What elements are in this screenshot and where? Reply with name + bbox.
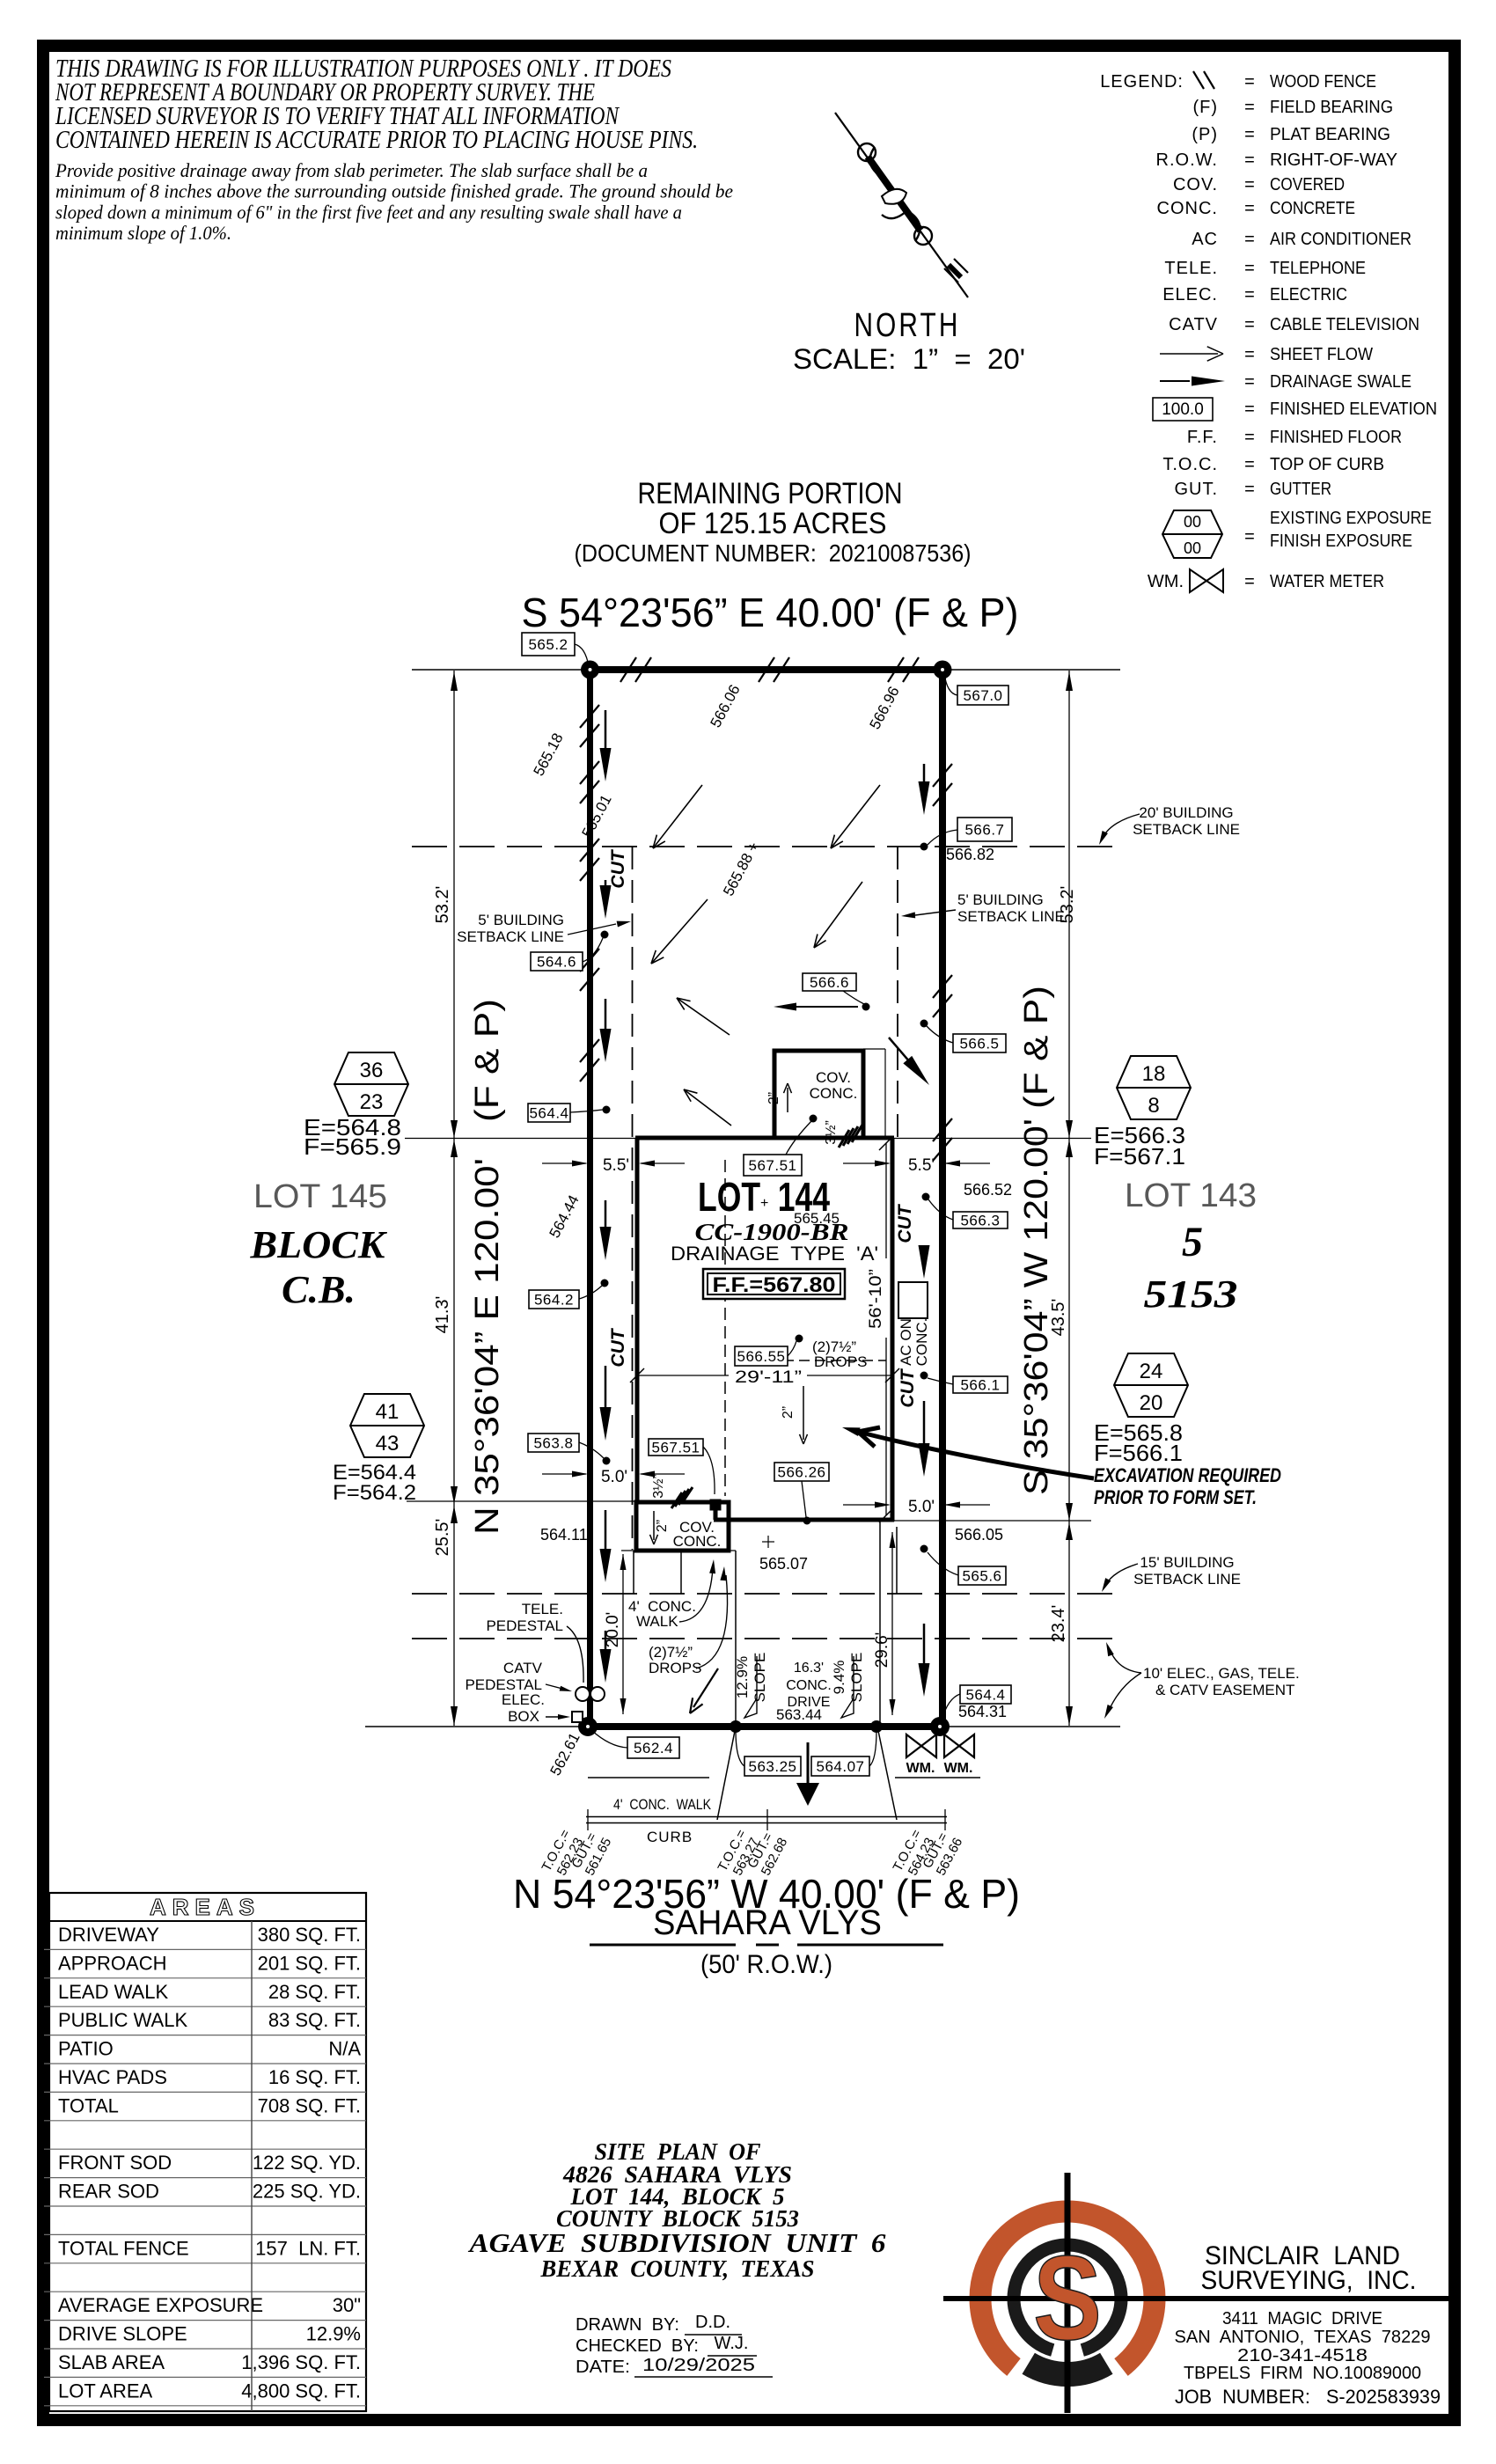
svg-text:41: 41 [376, 1400, 400, 1424]
svg-text:SCALE: 1” = 20': SCALE: 1” = 20' [793, 343, 1025, 375]
svg-text:TBPELS FIRM NO.10089000: TBPELS FIRM NO.10089000 [1184, 2364, 1421, 2383]
svg-text:566.5: 566.5 [959, 1036, 999, 1052]
svg-text:5' BUILDING: 5' BUILDING [478, 912, 564, 928]
svg-text:=: = [1244, 125, 1255, 144]
svg-text:SETBACK LINE: SETBACK LINE [457, 928, 564, 945]
svg-text:TOP OF CURB: TOP OF CURB [1270, 455, 1384, 474]
svg-text:DRAINAGE SWALE: DRAINAGE SWALE [1270, 372, 1412, 392]
svg-text:F=567.1: F=567.1 [1094, 1143, 1185, 1170]
svg-text:566.7: 566.7 [964, 822, 1004, 839]
svg-text:TELE.: TELE. [522, 1601, 563, 1617]
svg-text:WM.: WM. [1148, 572, 1184, 591]
svg-text:9.4%: 9.4% [831, 1661, 847, 1695]
svg-text:PLAT BEARING: PLAT BEARING [1270, 125, 1390, 144]
svg-text:N 35°36'04” E 120.00': N 35°36'04” E 120.00' [469, 1158, 506, 1535]
svg-text:=: = [1244, 572, 1255, 591]
svg-text:1,396 SQ. FT.: 1,396 SQ. FT. [241, 2351, 361, 2373]
svg-text:CUT: CUT [895, 1203, 915, 1243]
svg-text:564.31: 564.31 [958, 1703, 1007, 1720]
svg-text:3½”: 3½” [651, 1474, 666, 1499]
svg-text:83 SQ. FT.: 83 SQ. FT. [268, 2009, 361, 2031]
svg-text:41.3': 41.3' [433, 1296, 452, 1334]
svg-text:23: 23 [360, 1090, 384, 1114]
svg-text:708 SQ. FT.: 708 SQ. FT. [258, 2094, 361, 2116]
svg-text:GUT.: GUT. [1174, 480, 1218, 499]
svg-text:SETBACK LINE: SETBACK LINE [957, 908, 1065, 925]
svg-text:CONC.: CONC. [1157, 199, 1218, 218]
svg-text:LOT 143: LOT 143 [1125, 1177, 1257, 1214]
svg-text:2”: 2” [781, 1406, 796, 1419]
svg-text:DROPS: DROPS [814, 1353, 867, 1370]
svg-text:210-341-4518: 210-341-4518 [1237, 2346, 1368, 2365]
svg-text:16 SQ. FT.: 16 SQ. FT. [268, 2066, 361, 2088]
svg-text:RIGHT-OF-WAY: RIGHT-OF-WAY [1270, 150, 1397, 170]
svg-text:C.B.: C.B. [282, 1268, 356, 1311]
svg-text:FIELD BEARING: FIELD BEARING [1270, 98, 1393, 117]
svg-text:=: = [1244, 480, 1255, 499]
svg-text:4,800 SQ. FT.: 4,800 SQ. FT. [241, 2380, 361, 2402]
svg-text:380 SQ. FT.: 380 SQ. FT. [258, 1924, 361, 1946]
svg-text:CUT: CUT [898, 1368, 918, 1407]
svg-text:5.5': 5.5' [908, 1156, 935, 1175]
svg-text:F=564.2: F=564.2 [333, 1481, 416, 1505]
svg-text:APPROACH: APPROACH [58, 1952, 166, 1974]
svg-text:=: = [1244, 150, 1255, 170]
svg-text:566.6: 566.6 [810, 974, 849, 991]
svg-text:AC: AC [1192, 230, 1218, 249]
svg-text:5' BUILDING: 5' BUILDING [957, 891, 1044, 908]
svg-text:565.07: 565.07 [759, 1555, 808, 1573]
svg-text:16.3': 16.3' [794, 1661, 824, 1676]
svg-text:DRAWN BY:: DRAWN BY: [576, 2315, 679, 2335]
svg-text:WATER METER: WATER METER [1270, 572, 1384, 591]
svg-text:WM.: WM. [906, 1761, 935, 1776]
svg-text:20' BUILDING: 20' BUILDING [1139, 804, 1233, 821]
svg-text:157 LN. FT.: 157 LN. FT. [255, 2237, 361, 2259]
svg-text:225 SQ. YD.: 225 SQ. YD. [253, 2181, 361, 2203]
svg-text:18: 18 [1142, 1062, 1166, 1086]
svg-text:S 35°36'04” W 120.00': S 35°36'04” W 120.00' [1018, 1118, 1055, 1495]
svg-text:R.O.W.: R.O.W. [1156, 150, 1218, 170]
svg-text:DRAINAGE TYPE 'A': DRAINAGE TYPE 'A' [671, 1243, 878, 1265]
svg-text:CUT: CUT [608, 848, 628, 888]
svg-text:AREAS: AREAS [150, 1894, 260, 1920]
svg-text:GUTTER: GUTTER [1270, 480, 1331, 499]
svg-text:D.D.: D.D. [695, 2313, 730, 2332]
svg-text:TELEPHONE: TELEPHONE [1270, 259, 1366, 278]
svg-text:5.5': 5.5' [603, 1156, 629, 1175]
svg-text:(50' R.O.W.): (50' R.O.W.) [700, 1950, 832, 1979]
svg-text:CONC.: CONC. [786, 1678, 832, 1693]
svg-text:REMAINING PORTION: REMAINING PORTION [638, 477, 903, 510]
svg-text:CONC.: CONC. [810, 1085, 858, 1102]
svg-text:EXCAVATION REQUIRED: EXCAVATION REQUIRED [1094, 1464, 1281, 1486]
svg-text:=: = [1244, 372, 1255, 392]
svg-text:PRIOR TO FORM SET.: PRIOR TO FORM SET. [1094, 1486, 1257, 1508]
svg-text:567.51: 567.51 [749, 1157, 797, 1174]
svg-text:566.3: 566.3 [960, 1213, 1000, 1229]
svg-text:564.4: 564.4 [965, 1687, 1005, 1704]
svg-text:AGAVE SUBDIVISION UNIT 6: AGAVE SUBDIVISION UNIT 6 [467, 2227, 886, 2258]
svg-text:00: 00 [1184, 539, 1201, 557]
svg-text:OF 125.15 ACRES: OF 125.15 ACRES [659, 507, 887, 540]
svg-text:SETBACK LINE: SETBACK LINE [1133, 1571, 1241, 1588]
svg-text:F=566.1: F=566.1 [1094, 1440, 1183, 1466]
svg-text:562.4: 562.4 [634, 1740, 673, 1756]
svg-text:=: = [1244, 315, 1255, 334]
svg-text:CC-1900-BR: CC-1900-BR [695, 1219, 849, 1245]
svg-text:F.F.=567.80: F.F.=567.80 [713, 1273, 836, 1297]
svg-text:FRONT SOD: FRONT SOD [58, 2152, 172, 2174]
svg-text:CONC.: CONC. [913, 1318, 930, 1367]
svg-text:201 SQ. FT.: 201 SQ. FT. [258, 1952, 361, 1974]
svg-text:5.0': 5.0' [908, 1498, 935, 1516]
svg-text:24: 24 [1140, 1360, 1163, 1383]
svg-text:+: + [760, 1196, 768, 1211]
svg-text:25.5': 25.5' [433, 1519, 452, 1557]
svg-text:5153: 5153 [1144, 1272, 1238, 1316]
svg-text:=: = [1244, 285, 1255, 304]
svg-text:TOTAL FENCE: TOTAL FENCE [58, 2237, 189, 2259]
svg-text:SLAB AREA: SLAB AREA [58, 2351, 165, 2373]
svg-text:F.F.: F.F. [1187, 428, 1218, 447]
svg-text:BEXAR COUNTY, TEXAS: BEXAR COUNTY, TEXAS [540, 2255, 815, 2282]
svg-text:AVERAGE EXPOSURE: AVERAGE EXPOSURE [58, 2294, 263, 2316]
svg-text:564.07: 564.07 [817, 1758, 865, 1775]
svg-text:(DOCUMENT NUMBER: 20210087536: (DOCUMENT NUMBER: 20210087536) [575, 539, 972, 567]
svg-text:minimum slope of 1.0%.: minimum slope of 1.0%. [55, 222, 231, 244]
svg-text:=: = [1244, 259, 1255, 278]
svg-text:(F & P): (F & P) [469, 999, 506, 1122]
svg-text:(F & P): (F & P) [1018, 986, 1055, 1109]
svg-text:(F): (F) [1192, 98, 1218, 117]
svg-text:00: 00 [1184, 513, 1201, 531]
svg-text:4' CONC. WALK: 4' CONC. WALK [613, 1796, 712, 1813]
svg-text:TOTAL: TOTAL [58, 2094, 119, 2116]
svg-text:563.8: 563.8 [533, 1435, 573, 1452]
svg-text:29.6': 29.6' [873, 1632, 891, 1668]
svg-text:SLOPE: SLOPE [752, 1653, 768, 1703]
svg-text:JOB NUMBER: S-202583939: JOB NUMBER: S-202583939 [1175, 2386, 1441, 2408]
svg-text:COV.: COV. [816, 1069, 851, 1086]
svg-text:CHECKED BY:: CHECKED BY: [576, 2336, 699, 2356]
svg-text:PATIO: PATIO [58, 2038, 114, 2060]
svg-text:53.2': 53.2' [433, 886, 452, 924]
svg-text:SLOPE: SLOPE [848, 1653, 865, 1703]
svg-text:566.1: 566.1 [960, 1377, 1000, 1394]
svg-text:SAHARA VLYS: SAHARA VLYS [653, 1903, 882, 1942]
svg-text:BLOCK: BLOCK [249, 1223, 387, 1266]
svg-text:=: = [1244, 199, 1255, 218]
svg-text:8: 8 [1148, 1094, 1159, 1118]
svg-text:CONC.: CONC. [673, 1533, 722, 1550]
svg-text:WOOD FENCE: WOOD FENCE [1270, 72, 1376, 92]
svg-text:N/A: N/A [328, 2038, 361, 2060]
svg-text:CONCRETE: CONCRETE [1270, 199, 1355, 218]
svg-text:567.51: 567.51 [652, 1440, 700, 1456]
svg-text:20: 20 [1140, 1391, 1163, 1415]
svg-text:DRIVE SLOPE: DRIVE SLOPE [58, 2323, 187, 2345]
svg-text:10' ELEC., GAS, TELE.: 10' ELEC., GAS, TELE. [1143, 1665, 1300, 1682]
svg-text:=: = [1244, 400, 1255, 419]
svg-text:HVAC PADS: HVAC PADS [58, 2066, 167, 2088]
svg-text:Provide positive drainage away: Provide positive drainage away from slab… [55, 159, 648, 181]
svg-text:BOX: BOX [508, 1708, 539, 1725]
svg-text:564.2: 564.2 [534, 1292, 574, 1309]
svg-text:ELECTRIC: ELECTRIC [1270, 285, 1347, 304]
svg-text:S 54°23'56” E 40.00' (F & P): S 54°23'56” E 40.00' (F & P) [522, 590, 1019, 635]
svg-text:& CATV EASEMENT: & CATV EASEMENT [1155, 1682, 1294, 1698]
svg-text:564.6: 564.6 [537, 954, 576, 971]
svg-text:CONTAINED HEREIN IS ACCURATE P: CONTAINED HEREIN IS ACCURATE PRIOR TO PL… [55, 126, 698, 154]
svg-text:2”: 2” [655, 1520, 670, 1532]
svg-text:EXISTING EXPOSURE: EXISTING EXPOSURE [1270, 509, 1432, 528]
svg-text:LOT AREA: LOT AREA [58, 2380, 153, 2402]
svg-text:12.9%: 12.9% [306, 2323, 361, 2345]
svg-text:=: = [1244, 98, 1255, 117]
svg-text:28 SQ. FT.: 28 SQ. FT. [268, 1981, 361, 2003]
svg-text:ELEC.: ELEC. [502, 1691, 545, 1708]
svg-text:30": 30" [333, 2294, 361, 2316]
svg-text:566.26: 566.26 [778, 1464, 826, 1481]
svg-text:F=565.9: F=565.9 [304, 1133, 401, 1160]
svg-text:CUT: CUT [608, 1327, 628, 1367]
svg-text:10/29/2025: 10/29/2025 [642, 2356, 755, 2375]
svg-text:LEAD WALK: LEAD WALK [58, 1981, 168, 2003]
svg-text:3411 MAGIC DRIVE: 3411 MAGIC DRIVE [1222, 2309, 1382, 2328]
svg-text:DRIVEWAY: DRIVEWAY [58, 1924, 159, 1946]
svg-text:567.0: 567.0 [963, 687, 1002, 704]
svg-text:SURVEYING, INC.: SURVEYING, INC. [1201, 2266, 1417, 2295]
svg-text:W.J.: W.J. [715, 2334, 749, 2353]
svg-text:DATE:: DATE: [576, 2358, 630, 2377]
svg-text:565.6: 565.6 [962, 1568, 1001, 1585]
svg-text:COV.: COV. [1173, 175, 1218, 194]
svg-text:=: = [1244, 527, 1255, 546]
svg-text:minimum of 8 inches above the: minimum of 8 inches above the surroundin… [55, 180, 733, 202]
svg-text:565.2: 565.2 [528, 636, 568, 653]
svg-text:=: = [1244, 230, 1255, 249]
svg-text:FINISHED ELEVATION: FINISHED ELEVATION [1270, 400, 1437, 419]
svg-text:36: 36 [360, 1059, 384, 1082]
svg-text:ELEC.: ELEC. [1162, 285, 1218, 304]
svg-text:CATV: CATV [1169, 315, 1218, 334]
svg-text:566.55: 566.55 [737, 1348, 786, 1365]
svg-text:(P): (P) [1192, 125, 1218, 144]
svg-text:5: 5 [1182, 1219, 1203, 1265]
svg-text:=: = [1244, 455, 1255, 474]
svg-text:TELE.: TELE. [1164, 259, 1218, 278]
svg-text:PEDESTAL: PEDESTAL [486, 1617, 563, 1634]
svg-text:REAR SOD: REAR SOD [58, 2181, 159, 2203]
svg-text:566.05: 566.05 [955, 1526, 1003, 1544]
svg-text:S: S [1033, 2231, 1102, 2365]
svg-text:564.11: 564.11 [540, 1526, 588, 1544]
svg-text:566.52: 566.52 [964, 1181, 1012, 1199]
svg-text:FINISHED FLOOR: FINISHED FLOOR [1270, 428, 1402, 447]
svg-text:=: = [1244, 345, 1255, 364]
svg-text:CABLE TELEVISION: CABLE TELEVISION [1270, 315, 1419, 334]
svg-text:DRIVE: DRIVE [788, 1695, 831, 1710]
svg-text:sloped down a minimum of 6" in: sloped down a minimum of 6" in the first… [55, 201, 682, 223]
svg-text:563.25: 563.25 [749, 1758, 797, 1775]
svg-text:56'-10”: 56'-10” [867, 1269, 885, 1329]
svg-text:T.O.C.: T.O.C. [1162, 455, 1218, 474]
svg-text:=: = [1244, 175, 1255, 194]
svg-text:3½”: 3½” [824, 1120, 839, 1145]
svg-text:=: = [1244, 72, 1255, 92]
svg-text:CATV: CATV [503, 1660, 543, 1676]
svg-text:DROPS: DROPS [649, 1660, 701, 1676]
svg-text:23.4': 23.4' [1049, 1605, 1068, 1643]
svg-text:2”: 2” [766, 1092, 781, 1104]
svg-text:LOT 145: LOT 145 [253, 1178, 387, 1215]
svg-text:NORTH: NORTH [854, 307, 961, 344]
svg-text:12.9%: 12.9% [734, 1656, 751, 1698]
svg-text:AC ON: AC ON [898, 1318, 914, 1366]
svg-text:566.82: 566.82 [946, 846, 994, 863]
svg-text:WALK: WALK [636, 1613, 678, 1630]
svg-text:SAN ANTONIO, TEXAS 78229: SAN ANTONIO, TEXAS 78229 [1175, 2328, 1431, 2347]
svg-text:SHEET FLOW: SHEET FLOW [1270, 345, 1373, 364]
svg-text:FINISH EXPOSURE: FINISH EXPOSURE [1270, 532, 1412, 551]
svg-text:CURB: CURB [647, 1829, 693, 1845]
svg-text:WM.: WM. [944, 1761, 973, 1776]
svg-text:122 SQ. YD.: 122 SQ. YD. [253, 2152, 361, 2174]
svg-text:COVERED: COVERED [1270, 175, 1345, 194]
svg-text:100.0: 100.0 [1162, 400, 1204, 419]
svg-text:LEGEND:: LEGEND: [1100, 72, 1184, 92]
svg-text:AIR CONDITIONER: AIR CONDITIONER [1270, 230, 1412, 249]
svg-text:29'-11”: 29'-11” [735, 1368, 802, 1387]
svg-text:5.0': 5.0' [601, 1468, 627, 1486]
svg-text:564.4: 564.4 [529, 1105, 568, 1122]
svg-text:=: = [1244, 428, 1255, 447]
svg-text:PUBLIC WALK: PUBLIC WALK [58, 2009, 187, 2031]
svg-text:15' BUILDING: 15' BUILDING [1140, 1554, 1234, 1571]
svg-text:43: 43 [376, 1432, 400, 1456]
svg-text:(2)7½”: (2)7½” [649, 1644, 693, 1661]
svg-text:SETBACK LINE: SETBACK LINE [1133, 821, 1240, 838]
